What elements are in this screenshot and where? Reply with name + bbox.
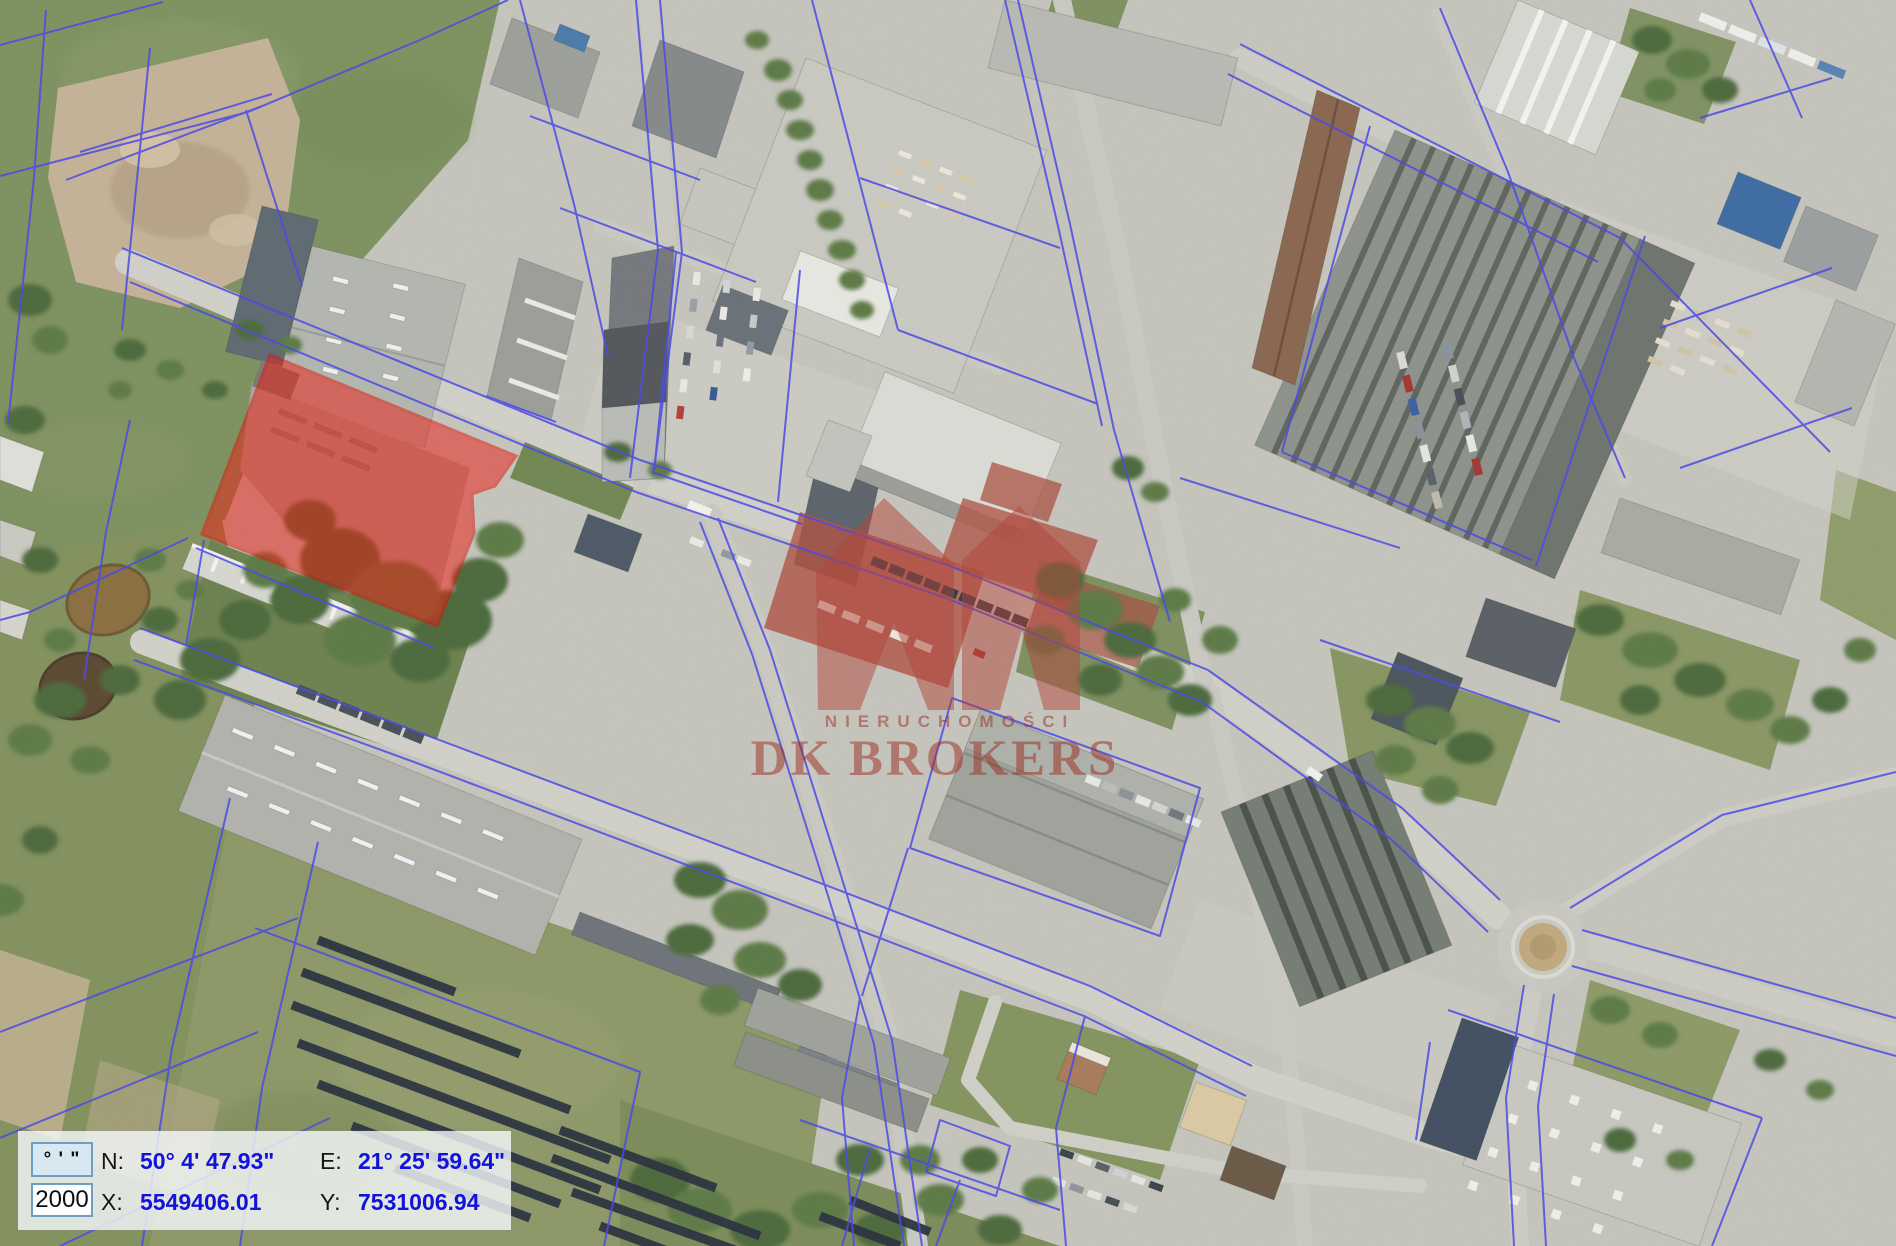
x-value: 5549406.01: [140, 1189, 262, 1216]
coordinate-panel: ° ' " 2000 N: 50° 4' 47.93" E: 21° 25' 5…: [18, 1131, 511, 1230]
north-label: N:: [101, 1148, 124, 1175]
y-label: Y:: [320, 1189, 340, 1216]
crs-2000-button[interactable]: 2000: [31, 1183, 93, 1217]
x-label: X:: [101, 1189, 123, 1216]
north-value: 50° 4' 47.93": [140, 1148, 274, 1175]
east-label: E:: [320, 1148, 342, 1175]
east-value: 21° 25' 59.64": [358, 1148, 505, 1175]
dms-format-button[interactable]: ° ' ": [31, 1142, 93, 1177]
grain-overlay: [0, 0, 1896, 1246]
y-value: 7531006.94: [358, 1189, 480, 1216]
aerial-basemap: [0, 0, 1896, 1246]
map-viewport[interactable]: NIERUCHOMOŚCI DK BROKERS ° ' " 2000 N: 5…: [0, 0, 1896, 1246]
